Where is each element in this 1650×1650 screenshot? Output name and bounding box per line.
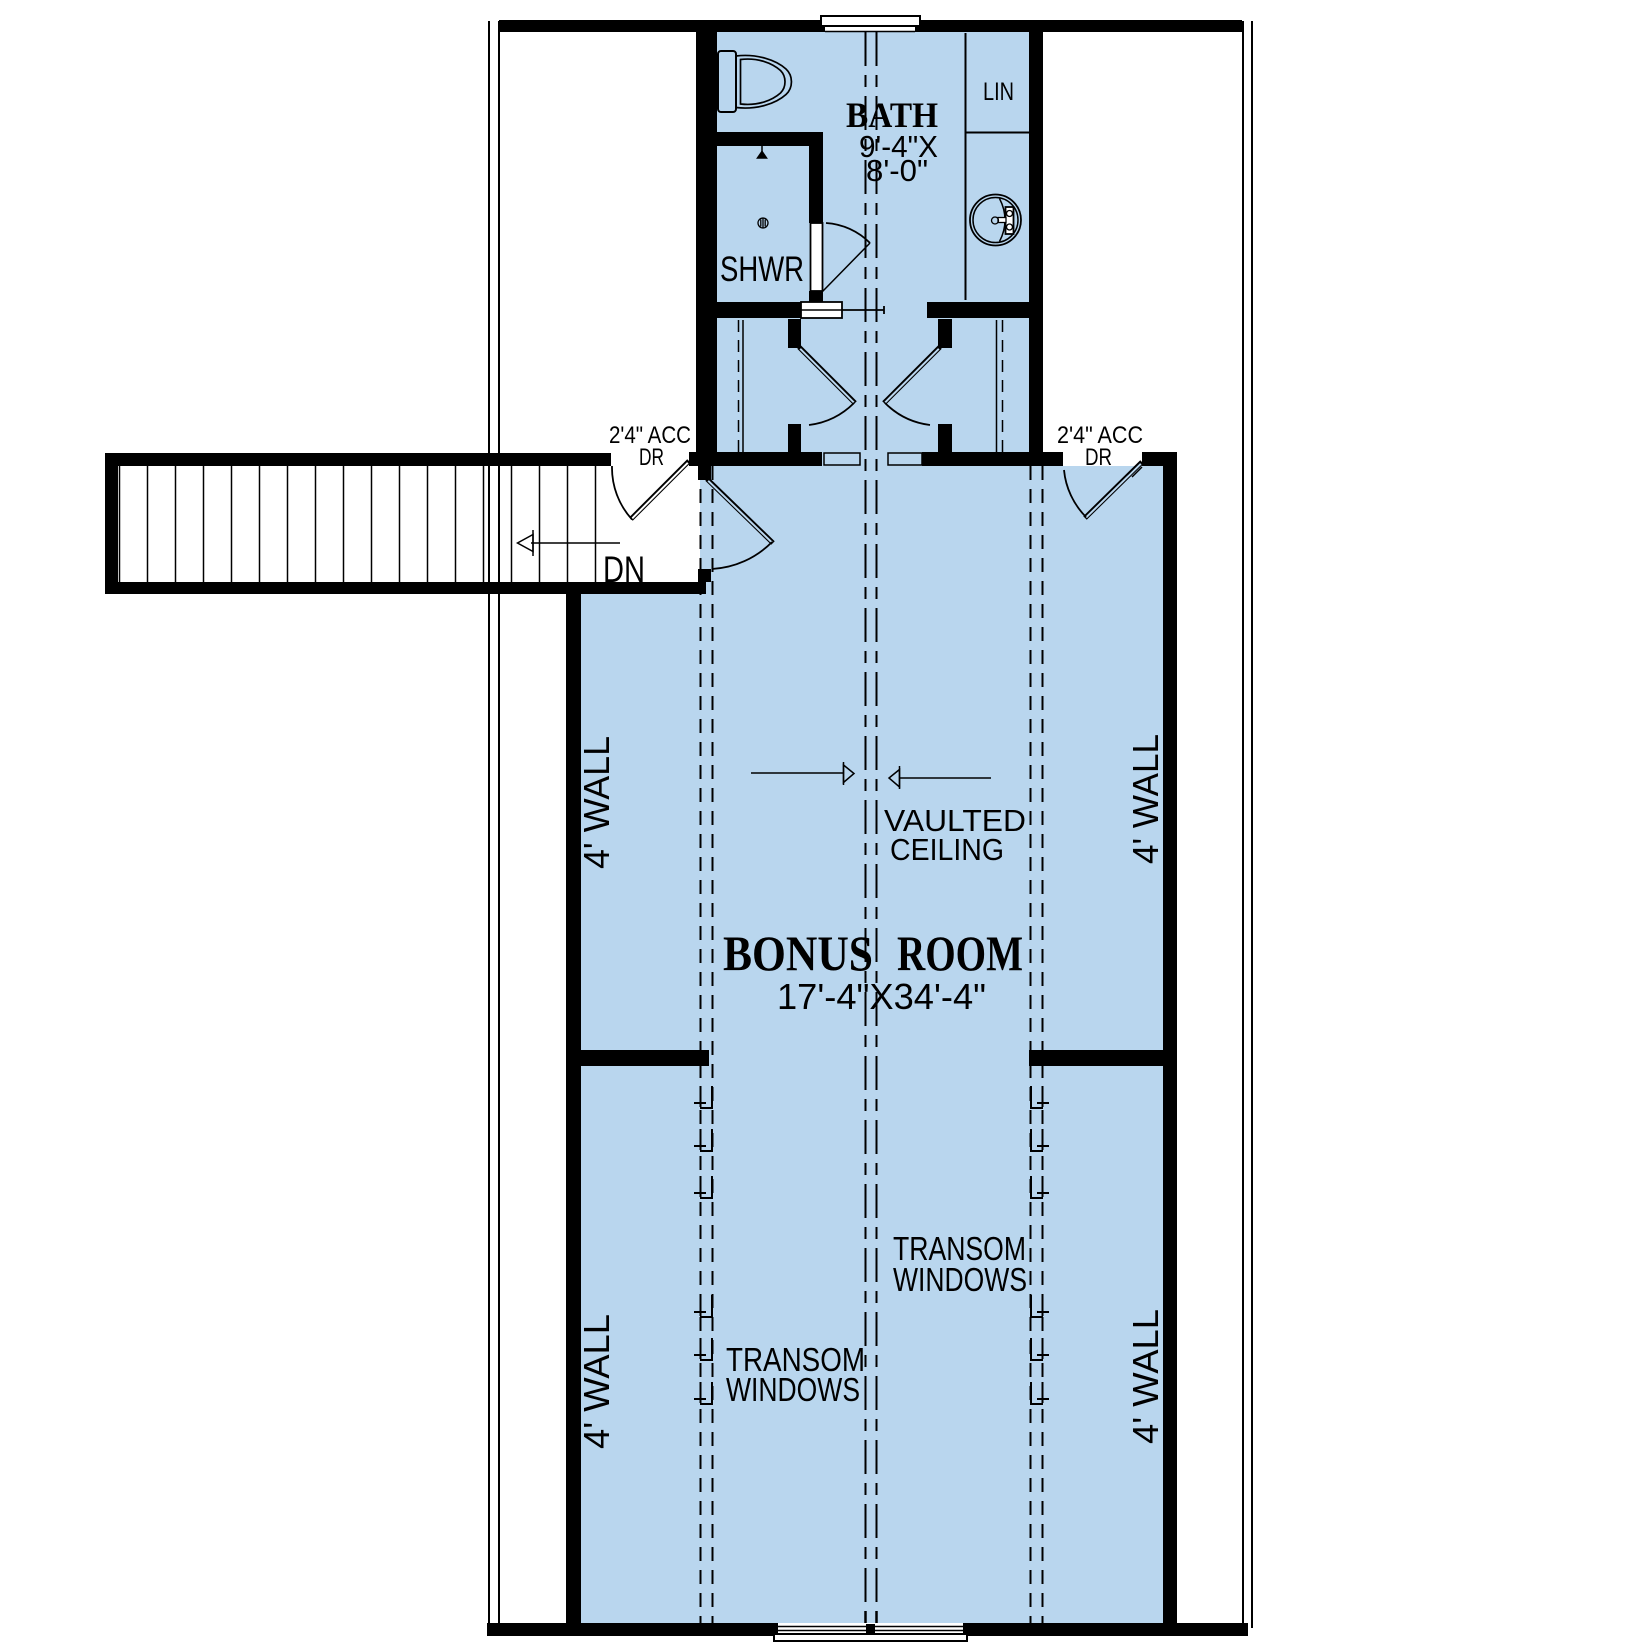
svg-text:4' WALL: 4' WALL xyxy=(576,1314,617,1449)
svg-text:4' WALL: 4' WALL xyxy=(1125,734,1166,864)
svg-text:CEILING: CEILING xyxy=(890,832,1004,867)
svg-text:WINDOWS: WINDOWS xyxy=(726,1371,860,1408)
svg-text:DN: DN xyxy=(603,549,645,590)
svg-text:4' WALL: 4' WALL xyxy=(1125,1309,1166,1444)
svg-text:SHWR: SHWR xyxy=(720,250,804,289)
svg-text:WINDOWS: WINDOWS xyxy=(893,1261,1027,1298)
svg-text:BONUS: BONUS xyxy=(723,925,873,981)
svg-text:DR: DR xyxy=(1085,444,1112,471)
svg-text:8'-0": 8'-0" xyxy=(866,153,928,188)
svg-text:ROOM: ROOM xyxy=(897,925,1023,981)
svg-text:DR: DR xyxy=(639,444,664,471)
svg-text:17'-4"X34'-4": 17'-4"X34'-4" xyxy=(777,976,986,1017)
svg-text:LIN: LIN xyxy=(983,78,1014,106)
svg-text:4' WALL: 4' WALL xyxy=(576,736,617,869)
